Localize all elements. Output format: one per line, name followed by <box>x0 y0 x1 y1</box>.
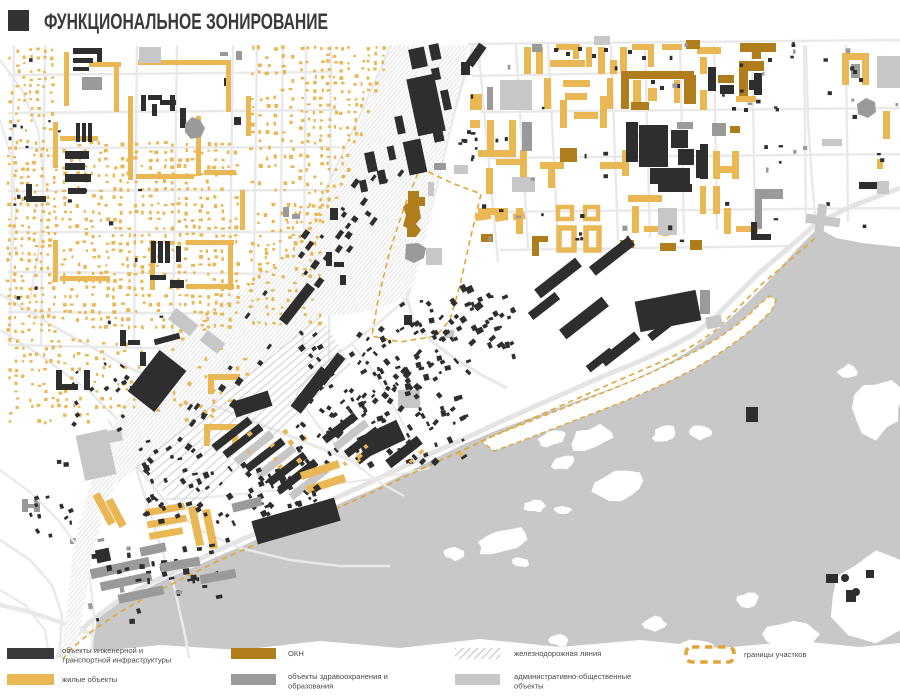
svg-text:административно-общественные: административно-общественные <box>514 672 631 681</box>
svg-text:железнодорожная линия: железнодорожная линия <box>514 649 601 658</box>
svg-text:объекты инженерной и: объекты инженерной и <box>62 646 143 655</box>
svg-text:жилые объекты: жилые объекты <box>62 675 117 684</box>
svg-text:транспортной инфраструктуры: транспортной инфраструктуры <box>62 656 171 665</box>
svg-text:объекты: объекты <box>514 682 544 691</box>
svg-text:объекты здравоохранения и: объекты здравоохранения и <box>288 672 388 681</box>
svg-text:ОКН: ОКН <box>288 649 304 658</box>
svg-text:образования: образования <box>288 682 333 691</box>
svg-text:границы участков: границы участков <box>744 650 807 659</box>
svg-text:ФУНКЦИОНАЛЬНОЕ ЗОНИРОВАНИЕ: ФУНКЦИОНАЛЬНОЕ ЗОНИРОВАНИЕ <box>44 9 328 34</box>
